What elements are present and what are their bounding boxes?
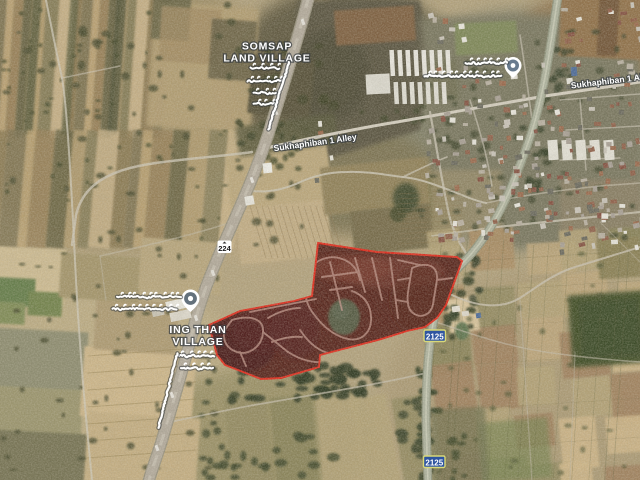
svg-text:VILLAGE: VILLAGE	[172, 336, 223, 348]
svg-text:ING THAN: ING THAN	[169, 324, 226, 336]
svg-text:LAND VILLAGE: LAND VILLAGE	[223, 53, 310, 65]
svg-text:2125: 2125	[425, 458, 443, 467]
svg-text:224: 224	[218, 244, 231, 253]
svg-text:2125: 2125	[426, 332, 444, 341]
svg-text:SOMSAP: SOMSAP	[242, 41, 292, 53]
